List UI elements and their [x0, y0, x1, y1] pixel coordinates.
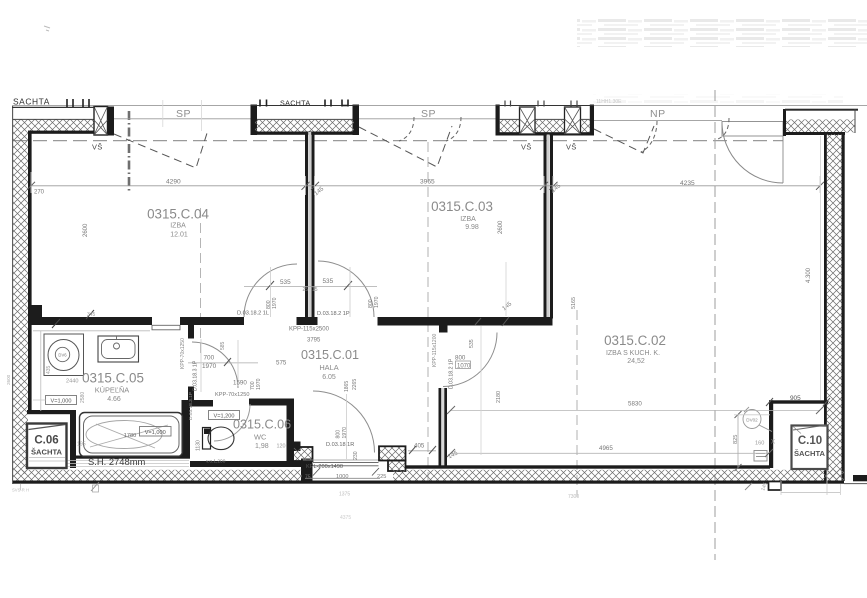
svg-text:0315.C.03: 0315.C.03 [431, 199, 493, 214]
svg-text:D.03.18.2 1P: D.03.18.2 1P [449, 358, 455, 389]
svg-text:2265: 2265 [352, 379, 358, 390]
svg-text:NP: NP [650, 108, 666, 120]
svg-text:V=1,000: V=1,000 [51, 399, 72, 405]
svg-text:KPL-200x1490: KPL-200x1490 [306, 464, 343, 470]
svg-text:1375: 1375 [339, 492, 350, 498]
svg-text:KPP-115x2500: KPP-115x2500 [289, 327, 330, 333]
svg-text:1970: 1970 [256, 378, 262, 390]
svg-text:4.66: 4.66 [107, 396, 121, 403]
svg-text:15: 15 [312, 287, 318, 293]
svg-text:585: 585 [220, 341, 226, 350]
svg-text:1970: 1970 [202, 363, 217, 370]
svg-text:1590: 1590 [233, 379, 247, 386]
svg-text:4290: 4290 [166, 178, 181, 185]
svg-text:D.03.18.2 1P: D.03.18.2 1P [317, 311, 350, 317]
svg-text:270: 270 [34, 190, 45, 196]
svg-text:6.05: 6.05 [322, 374, 336, 381]
svg-text:535: 535 [280, 279, 291, 286]
svg-text:25: 25 [303, 287, 309, 293]
svg-text:ŠACHTA: ŠACHTA [31, 448, 63, 457]
svg-text:1000: 1000 [336, 474, 348, 480]
svg-text:2600: 2600 [6, 374, 11, 385]
svg-text:SP: SP [421, 108, 436, 120]
svg-text:5830: 5830 [628, 400, 642, 407]
svg-text:IZBA S KUCH. K.: IZBA S KUCH. K. [606, 350, 660, 357]
svg-text:3965: 3965 [420, 178, 435, 185]
svg-text:1130: 1130 [196, 440, 202, 451]
svg-text:DV02: DV02 [746, 418, 758, 423]
svg-text:1,98: 1,98 [255, 443, 269, 450]
svg-text:5165: 5165 [571, 297, 577, 309]
svg-text:D.03.18.1R: D.03.18.1R [326, 442, 354, 448]
svg-text:535: 535 [469, 339, 475, 348]
svg-text:SACHTA: SACHTA [13, 97, 50, 107]
svg-text:v.o.1,200: v.o.1,200 [206, 459, 226, 465]
svg-text:3795: 3795 [307, 338, 321, 344]
svg-text:2600: 2600 [498, 220, 504, 234]
svg-text:C.10: C.10 [798, 435, 822, 447]
svg-text:2580: 2580 [80, 392, 86, 403]
svg-text:7300: 7300 [568, 494, 579, 500]
svg-text:KPP-115x1200: KPP-115x1200 [432, 334, 438, 367]
svg-text:V=1,200: V=1,200 [214, 414, 235, 420]
svg-text:120: 120 [277, 444, 286, 450]
svg-text:HALA: HALA [319, 363, 338, 372]
svg-text:4965: 4965 [599, 445, 613, 452]
svg-text:D.03.18.3 1P: D.03.18.3 1P [193, 360, 199, 391]
svg-text:VŠ: VŠ [521, 143, 532, 152]
svg-text:230: 230 [353, 451, 359, 460]
svg-text:1780: 1780 [124, 433, 136, 439]
svg-text:800: 800 [336, 430, 342, 439]
svg-text:825: 825 [733, 435, 739, 444]
svg-text:160: 160 [755, 441, 764, 447]
svg-text:905: 905 [790, 395, 801, 402]
svg-text:575: 575 [276, 360, 287, 367]
svg-text:12.01: 12.01 [170, 232, 188, 239]
svg-text:KPP-70x1250: KPP-70x1250 [180, 338, 186, 369]
svg-text:535: 535 [323, 278, 334, 285]
svg-text:0315.C.01: 0315.C.01 [301, 348, 359, 362]
svg-text:IZBA: IZBA [460, 216, 476, 223]
svg-text:S.H. 2748mm: S.H. 2748mm [88, 456, 146, 467]
svg-text:2440: 2440 [66, 379, 78, 385]
svg-text:1970: 1970 [374, 296, 380, 308]
svg-text:4.300: 4.300 [806, 267, 812, 283]
svg-text:IZBA: IZBA [170, 223, 186, 230]
svg-text:195: 195 [77, 442, 86, 448]
svg-text:145: 145 [314, 186, 326, 197]
svg-text:4375: 4375 [340, 515, 351, 521]
svg-text:1865: 1865 [344, 381, 350, 392]
svg-text:0315.C.06: 0315.C.06 [233, 418, 291, 432]
svg-text:700: 700 [204, 355, 215, 362]
svg-text:0315.C.05: 0315.C.05 [82, 371, 144, 386]
svg-text:0315.C.02: 0315.C.02 [604, 333, 666, 348]
svg-text:X: X [771, 440, 775, 446]
svg-text:1970: 1970 [342, 427, 348, 439]
svg-text:11HH1.30E: 11HH1.30E [596, 99, 622, 105]
svg-text:KPP-70x1250: KPP-70x1250 [215, 392, 250, 398]
svg-text:225: 225 [377, 474, 386, 480]
svg-text:D.03.18.2 1L: D.03.18.2 1L [237, 311, 269, 317]
svg-text:2180: 2180 [496, 391, 502, 403]
svg-text:KÚPEĽŇA: KÚPEĽŇA [95, 386, 130, 395]
svg-text:V=1,000: V=1,000 [145, 430, 166, 436]
svg-text:1970: 1970 [272, 297, 278, 309]
svg-text:C.06: C.06 [34, 435, 58, 447]
svg-text:24,52: 24,52 [627, 358, 645, 365]
svg-text:VŠ: VŠ [92, 143, 103, 152]
svg-text:345: 345 [87, 312, 96, 318]
svg-text:435: 435 [46, 365, 52, 374]
svg-text:0315.C.04: 0315.C.04 [147, 207, 209, 222]
svg-text:SP: SP [176, 108, 191, 120]
svg-text:WC: WC [254, 433, 267, 442]
svg-text:VŠ: VŠ [566, 143, 577, 152]
svg-text:2600: 2600 [83, 223, 89, 237]
svg-text:75: 75 [305, 474, 311, 480]
svg-text:800: 800 [455, 355, 466, 362]
svg-text:DV6: DV6 [58, 353, 67, 358]
svg-text:1070: 1070 [457, 363, 471, 369]
svg-text:SACHTA: SACHTA [280, 98, 310, 107]
svg-text:145: 145 [502, 301, 514, 312]
svg-text:D.03.18.3.1P: D.03.18.3.1P [188, 392, 194, 420]
svg-text:4235: 4235 [680, 180, 695, 187]
svg-text:ŠACHTA: ŠACHTA [794, 449, 826, 458]
svg-text:9.98: 9.98 [465, 224, 479, 231]
